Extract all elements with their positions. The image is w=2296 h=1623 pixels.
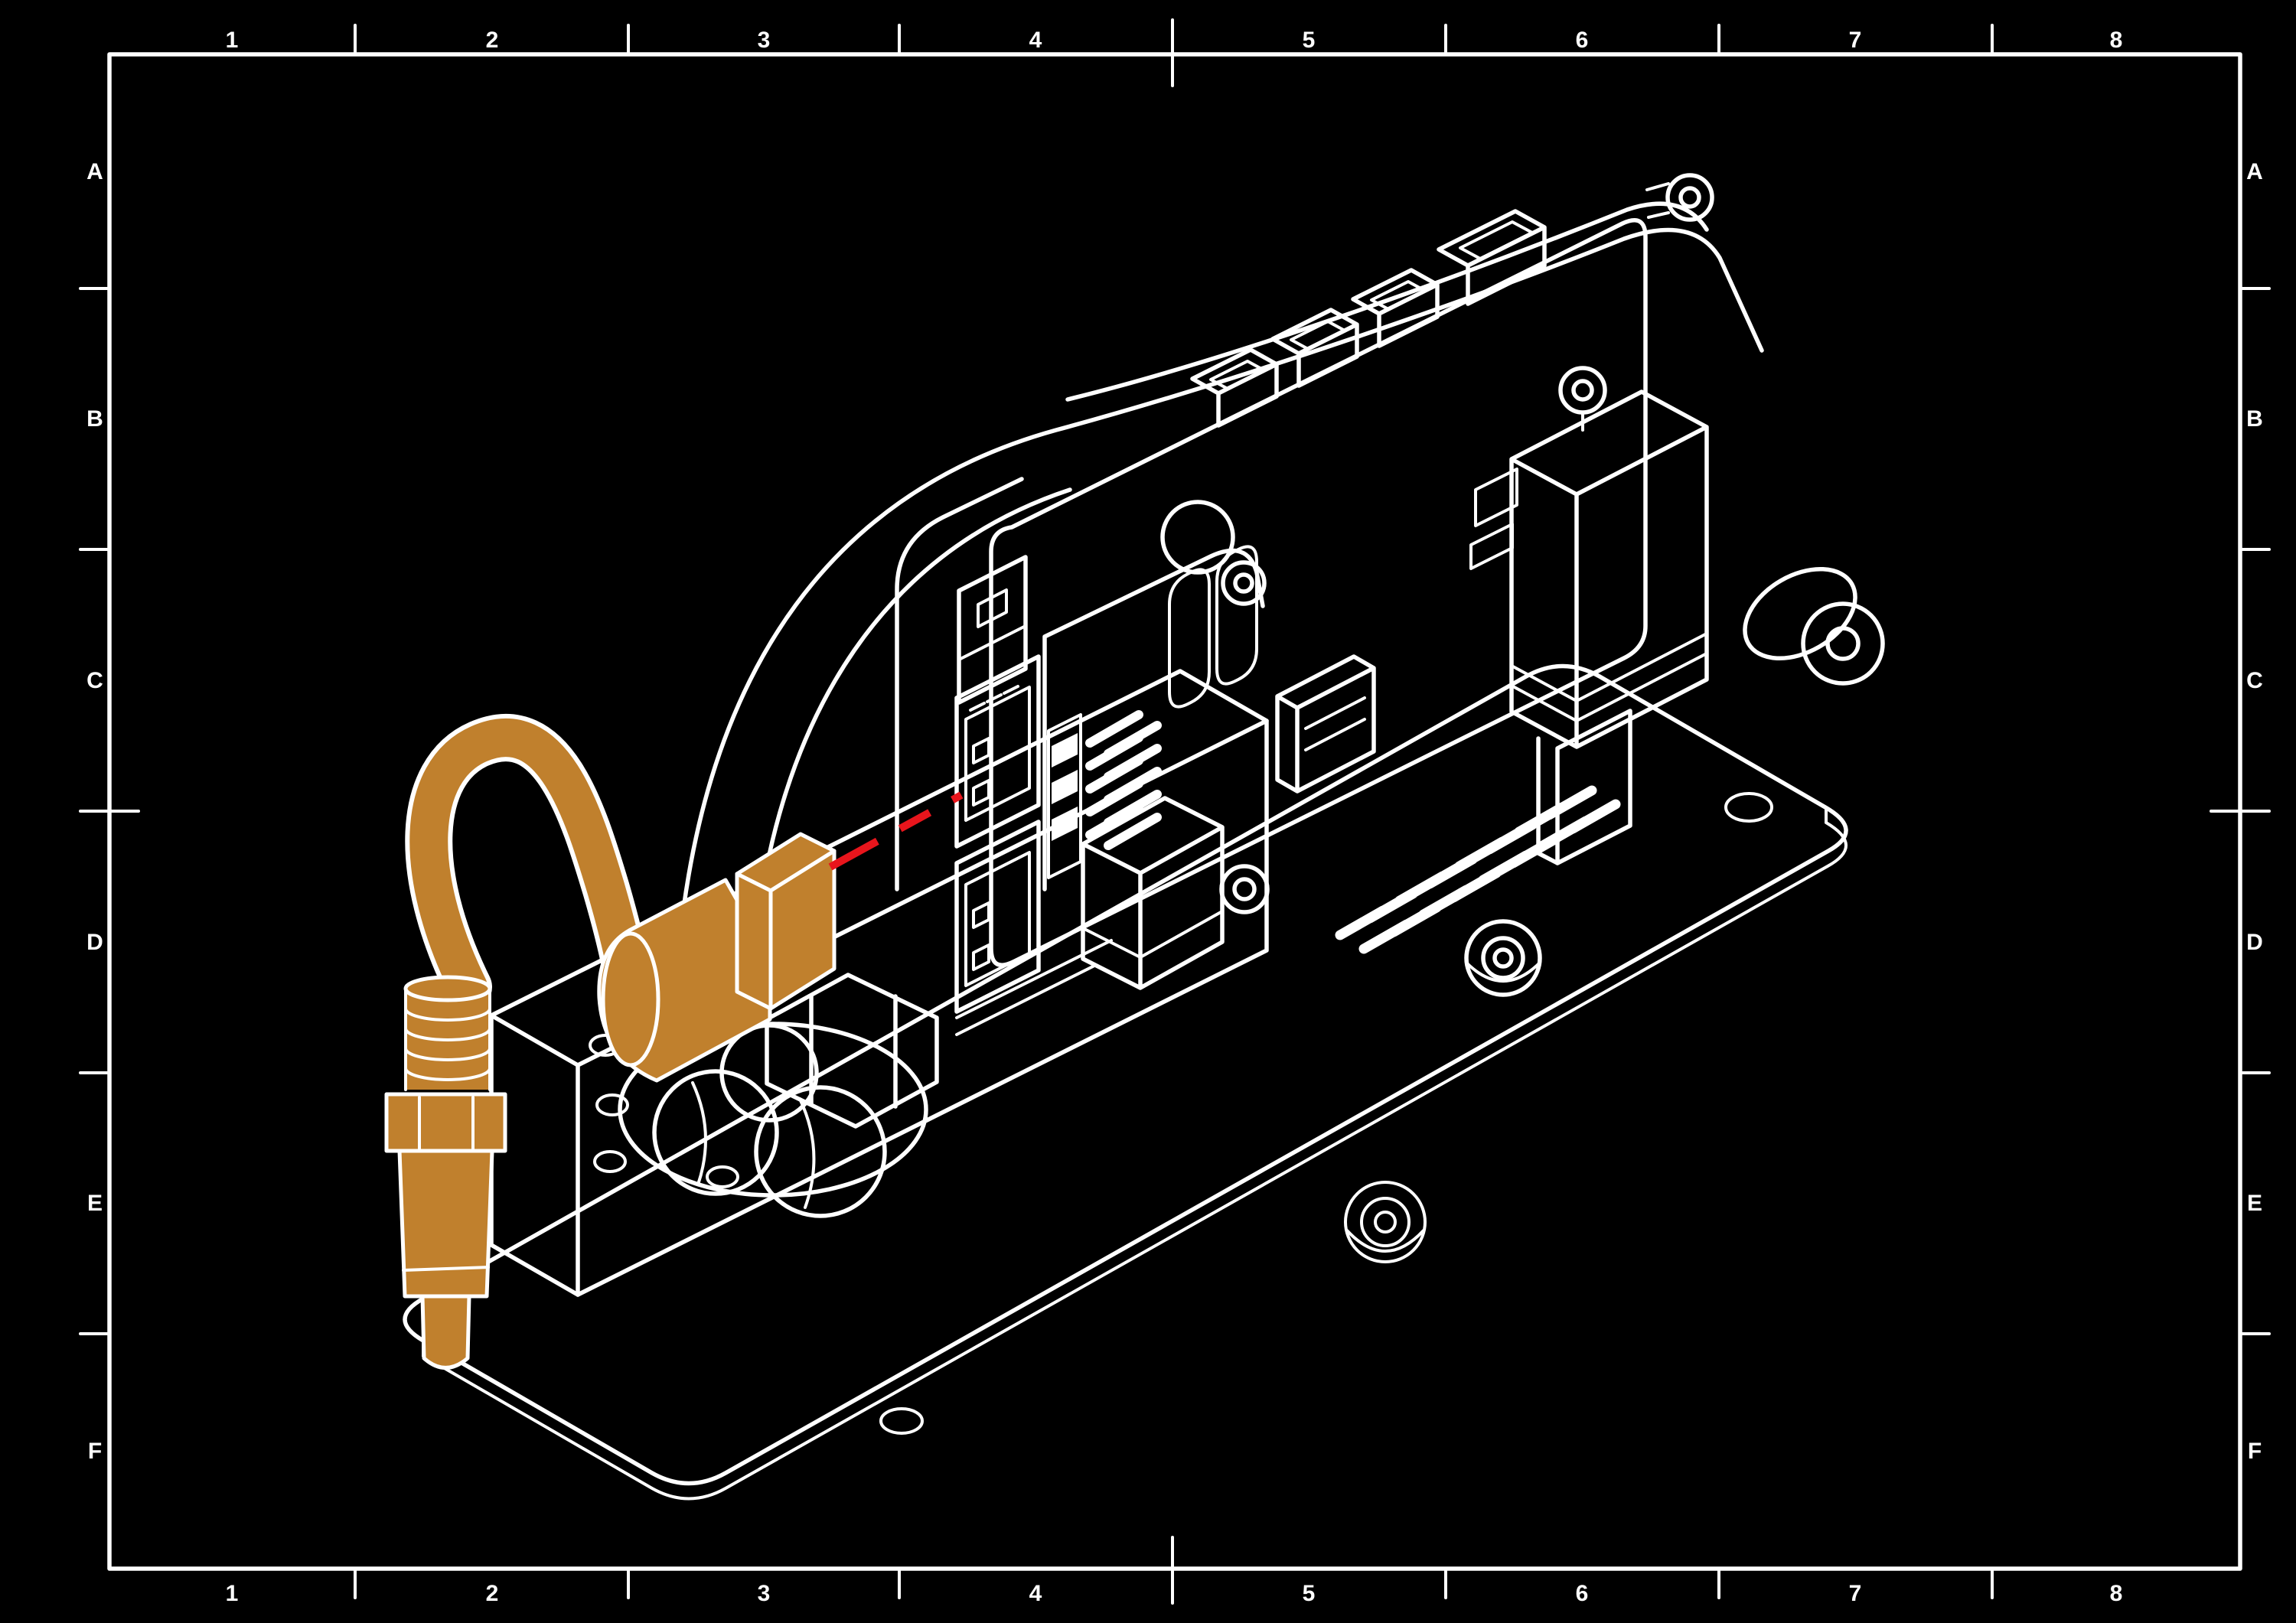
cable-loop-orange	[429, 738, 631, 996]
servo-motor	[1471, 175, 1883, 863]
jack-body	[400, 1151, 492, 1296]
shaft-endcap-washer	[1647, 175, 1712, 220]
grid-label-col-4-bottom: 4	[1029, 1581, 1042, 1606]
grid-label-row-c-left: C	[86, 668, 103, 693]
grid-label-row-d-right: D	[2246, 930, 2263, 955]
grid-label-col-7-top: 7	[1849, 28, 1862, 53]
grid-label-col-4-top: 4	[1029, 28, 1042, 53]
grid-label-col-6-bottom: 6	[1576, 1581, 1589, 1606]
grid-label-col-8-top: 8	[2110, 28, 2123, 53]
drawing-sheet: 1 2 3 4 5 6 7 8 1 2 3 4 5 6 7 8 A B C D …	[0, 0, 2296, 1623]
roller-wheel	[1729, 551, 1883, 683]
jack-tip	[422, 1296, 469, 1368]
grid-label-col-5-top: 5	[1303, 28, 1316, 53]
grid-label-row-a-right: A	[2246, 159, 2263, 184]
module-cage-lower	[957, 822, 1111, 1035]
assembly-drawing-canvas: 1 2 3 4 5 6 7 8 1 2 3 4 5 6 7 8 A B C D …	[0, 0, 2296, 1623]
xt60-plug-orange	[737, 834, 834, 1009]
grid-label-col-1-top: 1	[226, 28, 239, 53]
boot-endcap	[603, 934, 658, 1065]
grid-label-row-c-right: C	[2246, 668, 2263, 693]
grid-label-col-1-bottom: 1	[226, 1581, 239, 1606]
plate-screw-grommet	[1345, 1182, 1425, 1262]
grid-label-row-e-right: E	[2247, 1191, 2262, 1216]
board-outline	[991, 220, 1645, 966]
grid-label-col-3-bottom: 3	[758, 1581, 771, 1606]
pin-header-vertical	[1090, 715, 1157, 846]
caster-hex-housing	[767, 975, 937, 1126]
circuit-board	[991, 211, 1645, 995]
jack-hex-collar	[386, 1094, 505, 1151]
grid-label-row-b-right: B	[2246, 406, 2263, 432]
grid-label-col-8-bottom: 8	[2110, 1581, 2123, 1606]
grid-label-row-a-left: A	[86, 159, 103, 184]
grid-label-row-e-left: E	[87, 1191, 103, 1216]
grid-label-col-2-top: 2	[486, 28, 499, 53]
housing-back-top-edge	[1068, 204, 1707, 399]
grid-label-row-b-left: B	[86, 406, 103, 432]
dc-jack-orange	[386, 977, 505, 1368]
grid-label-col-3-top: 3	[758, 28, 771, 53]
grid-label-col-5-bottom: 5	[1303, 1581, 1316, 1606]
standoff-washer-mid	[1221, 866, 1267, 912]
housing-outer-silhouette	[683, 230, 1762, 909]
gpio-pin-header	[1340, 790, 1616, 949]
port-frame-inner	[1045, 551, 1263, 889]
grid-label-col-2-bottom: 2	[486, 1581, 499, 1606]
grid-label-row-d-left: D	[86, 930, 103, 955]
grid-label-col-6-top: 6	[1576, 28, 1589, 53]
servo-horn	[1561, 368, 1605, 430]
servo-body	[1512, 392, 1707, 747]
standoff-washer-big	[1466, 921, 1540, 995]
baseplate-holes	[445, 794, 1772, 1433]
grid-label-row-f-left: F	[88, 1439, 102, 1464]
grid-label-row-f-right: F	[2248, 1439, 2262, 1464]
striped-module	[1049, 715, 1081, 878]
board-edge-connector-4	[1439, 211, 1544, 304]
grid-label-col-7-bottom: 7	[1849, 1581, 1862, 1606]
